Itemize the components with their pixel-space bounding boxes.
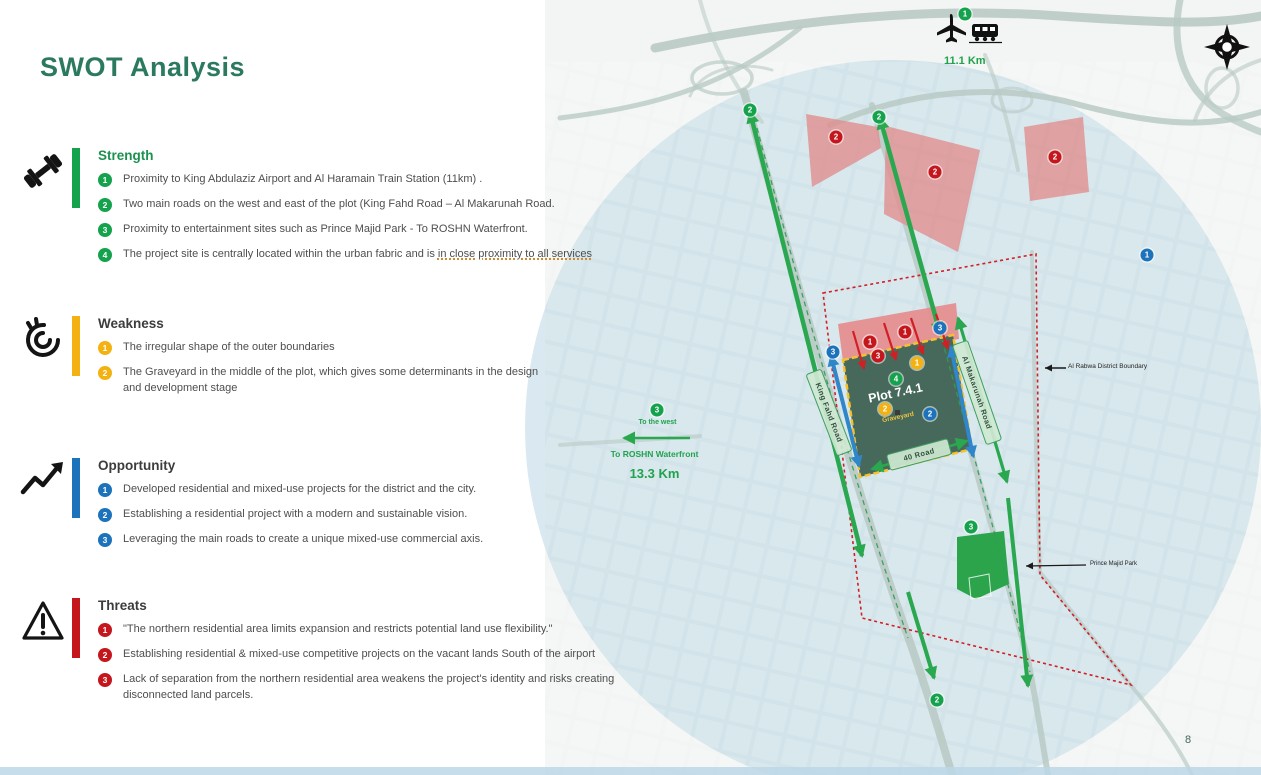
badge-district: 1 xyxy=(1141,249,1154,262)
swot-item-text: Establishing residential & mixed-use com… xyxy=(123,647,595,663)
district-boundary-label: Al Rabwa District Boundary xyxy=(1068,363,1147,370)
section-threats: Threats 1"The northern residential area … xyxy=(0,598,660,713)
list-item: 3Leveraging the main roads to create a u… xyxy=(98,532,483,548)
item-number-badge: 1 xyxy=(98,173,112,187)
section-opportunity: Opportunity 1Developed residential and m… xyxy=(0,458,483,557)
swot-panel: SWOT Analysis Strength 1Proximity to Kin… xyxy=(0,0,660,775)
list-item: 1"The northern residential area limits e… xyxy=(98,622,660,638)
graveyard-icon xyxy=(895,410,900,415)
strength-bar xyxy=(72,148,80,208)
swot-item-text: Leveraging the main roads to create a un… xyxy=(123,532,483,548)
badge-central-site: 4 xyxy=(890,373,903,386)
list-item: 1The irregular shape of the outer bounda… xyxy=(98,340,547,356)
badge-vacant-2: 2 xyxy=(929,166,942,179)
section-title: Threats xyxy=(98,598,660,613)
badge-irregular: 1 xyxy=(911,357,924,370)
badge-king-fahd: 3 xyxy=(827,346,840,359)
swot-item-text: Developed residential and mixed-use proj… xyxy=(123,482,476,498)
item-number-badge: 1 xyxy=(98,623,112,637)
list-item: 2Establishing residential & mixed-use co… xyxy=(98,647,660,663)
list-item: 1Proximity to King Abdulaziz Airport and… xyxy=(98,172,592,188)
badge-vacant-1: 2 xyxy=(830,131,843,144)
item-number-badge: 2 xyxy=(98,648,112,662)
badge-airport: 1 xyxy=(959,8,972,21)
warning-triangle-icon xyxy=(20,598,66,644)
badge-road-south: 2 xyxy=(931,694,944,707)
item-number-badge: 1 xyxy=(98,483,112,497)
dumbbell-icon xyxy=(20,148,66,194)
swot-item-text: The Graveyard in the middle of the plot,… xyxy=(123,365,547,397)
badge-graveyard: 2 xyxy=(879,403,892,416)
trend-up-icon xyxy=(20,458,66,504)
item-number-badge: 2 xyxy=(98,198,112,212)
threats-bar xyxy=(72,598,80,658)
weakness-bar xyxy=(72,316,80,376)
item-number-badge: 3 xyxy=(98,673,112,687)
item-number-badge: 4 xyxy=(98,248,112,262)
section-title: Opportunity xyxy=(98,458,483,473)
swot-item-text: Two main roads on the west and east of t… xyxy=(123,197,555,213)
section-title: Strength xyxy=(98,148,592,163)
swot-item-text: Establishing a residential project with … xyxy=(123,507,467,523)
badge-al-makarunah: 3 xyxy=(934,322,947,335)
list-item: 2Establishing a residential project with… xyxy=(98,507,483,523)
swot-item-text: "The northern residential area limits ex… xyxy=(123,622,553,638)
swot-item-text: The irregular shape of the outer boundar… xyxy=(123,340,335,356)
badge-road-north-1: 2 xyxy=(744,104,757,117)
badge-residential: 2 xyxy=(924,408,937,421)
swot-item-text: Lack of separation from the northern res… xyxy=(123,672,660,704)
item-number-badge: 3 xyxy=(98,533,112,547)
item-number-badge: 2 xyxy=(98,366,112,380)
airport-distance-label: 11.1 Km xyxy=(944,55,986,67)
opportunity-bar xyxy=(72,458,80,518)
list-item: 2The Graveyard in the middle of the plot… xyxy=(98,365,547,397)
badge-north-limit-2: 1 xyxy=(899,326,912,339)
badge-vacant-3: 2 xyxy=(1049,151,1062,164)
section-strength: Strength 1Proximity to King Abdulaziz Ai… xyxy=(0,148,592,272)
section-weakness: Weakness 1The irregular shape of the out… xyxy=(0,316,547,406)
item-number-badge: 3 xyxy=(98,223,112,237)
item-number-badge: 2 xyxy=(98,508,112,522)
underlined-text: in close proximity to all services xyxy=(438,248,592,260)
list-item: 2Two main roads on the west and east of … xyxy=(98,197,592,213)
badge-separation: 3 xyxy=(872,350,885,363)
page-title: SWOT Analysis xyxy=(40,52,245,83)
item-number-badge: 1 xyxy=(98,341,112,355)
list-item: 3Proximity to entertainment sites such a… xyxy=(98,222,592,238)
badge-road-north-2: 2 xyxy=(873,111,886,124)
section-title: Weakness xyxy=(98,316,547,331)
park-label: Prince Majid Park xyxy=(1090,561,1137,567)
badge-park: 3 xyxy=(965,521,978,534)
badge-north-limit-1: 1 xyxy=(864,336,877,349)
swot-item-text: Proximity to King Abdulaziz Airport and … xyxy=(123,172,482,188)
confused-face-icon xyxy=(20,316,66,362)
list-item: 1Developed residential and mixed-use pro… xyxy=(98,482,483,498)
list-item: 4The project site is centrally located w… xyxy=(98,247,592,263)
page-number: 8 xyxy=(1185,734,1191,746)
list-item: 3Lack of separation from the northern re… xyxy=(98,672,660,704)
swot-item-text: Proximity to entertainment sites such as… xyxy=(123,222,528,238)
swot-item-text: The project site is centrally located wi… xyxy=(123,247,592,263)
